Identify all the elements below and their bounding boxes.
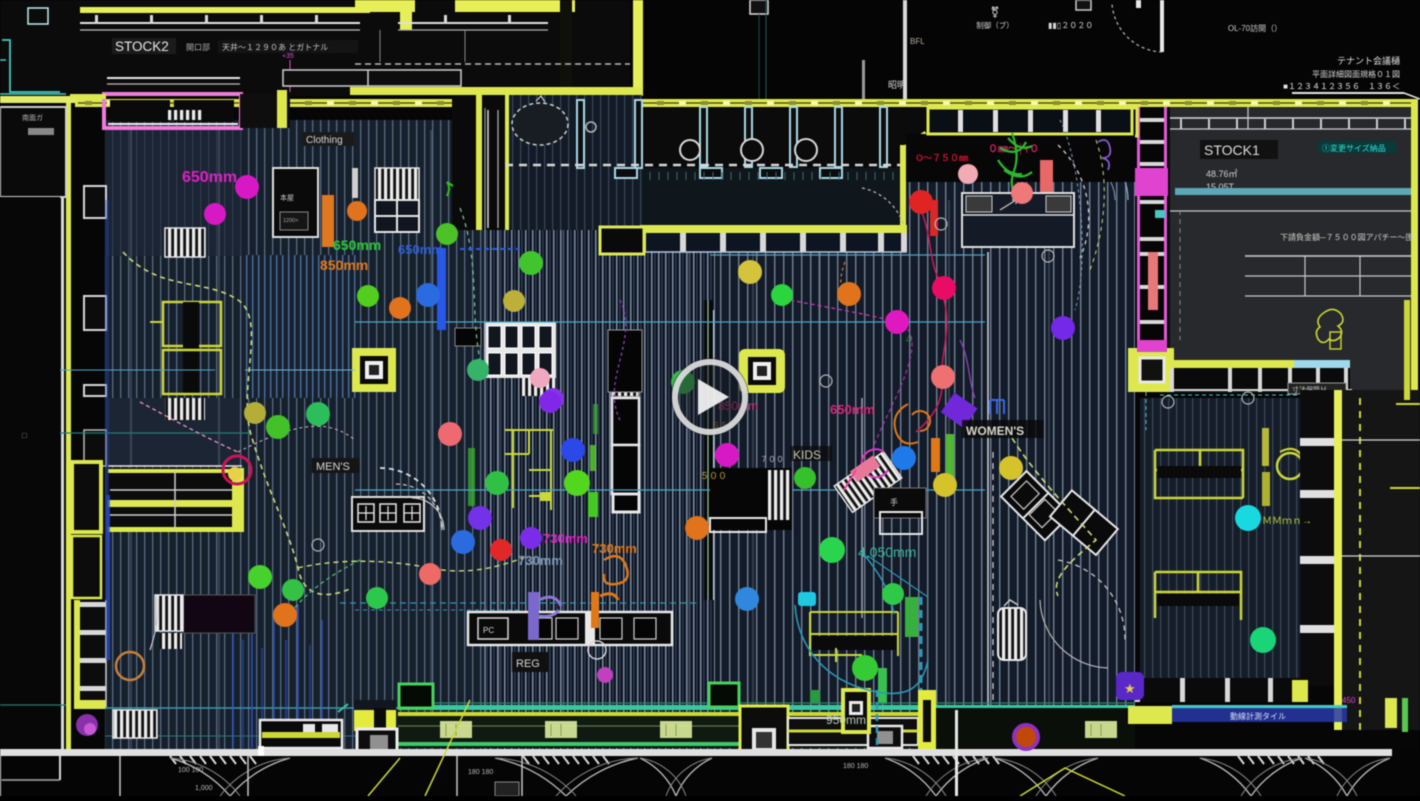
svg-text:450: 450 [1342, 696, 1356, 705]
svg-text:KIDS: KIDS [793, 448, 821, 462]
svg-text:730mm: 730mm [543, 531, 588, 546]
svg-text:REG: REG [516, 658, 540, 670]
svg-text:テナント会議樋: テナント会議樋 [1337, 55, 1400, 66]
svg-text:BFL: BFL [910, 37, 925, 46]
svg-text:MEN'S: MEN'S [316, 461, 350, 473]
svg-text:730mm: 730mm [592, 541, 637, 556]
svg-text:７００: ７００ [760, 455, 784, 464]
svg-text:180 180: 180 180 [843, 763, 868, 770]
svg-text:STOCK2: STOCK2 [115, 39, 169, 54]
svg-text:⚧: ⚧ [990, 6, 999, 19]
svg-text:STOCK1: STOCK1 [1204, 142, 1260, 158]
svg-text:▮▮▯２０２０: ▮▮▯２０２０ [1048, 21, 1093, 30]
svg-text:WOMEN'S: WOMEN'S [966, 424, 1024, 438]
svg-text:100 100: 100 100 [178, 767, 203, 774]
svg-text:ＭＭｍｎ→: ＭＭｍｎ→ [1262, 516, 1312, 527]
svg-text:650mm: 650mm [830, 402, 875, 417]
svg-text:制御（ブ）: 制御（ブ） [976, 20, 1014, 30]
svg-text:PC: PC [483, 626, 494, 635]
svg-text:O〜７５０㎜: O〜７５０㎜ [916, 153, 968, 163]
svg-text:■１２３４１２３５６ １３６＜: ■１２３４１２３５６ １３６＜ [1283, 82, 1400, 91]
svg-text:1200×: 1200× [283, 218, 298, 224]
svg-text:開口部: 開口部 [186, 42, 210, 52]
svg-text:△: △ [906, 333, 913, 342]
svg-text:南面ガ: 南面ガ [22, 113, 43, 122]
svg-text:4,050mm: 4,050mm [858, 544, 916, 560]
svg-text:730mm: 730mm [518, 553, 563, 568]
svg-text:180 180: 180 180 [468, 769, 493, 776]
svg-text:★: ★ [1124, 681, 1136, 696]
svg-text:OL-70訪開（）: OL-70訪開（） [1228, 23, 1282, 33]
svg-text:□: □ [22, 431, 27, 440]
svg-text:1,000: 1,000 [195, 785, 213, 792]
svg-text:手: 手 [890, 497, 898, 507]
svg-text:動線計測タイル: 動線計測タイル [1230, 711, 1286, 721]
svg-text:５００: ５００ [700, 471, 727, 481]
svg-text:+35: +35 [282, 53, 294, 60]
svg-text:Clothing: Clothing [306, 135, 343, 146]
svg-text:本屋: 本屋 [280, 193, 294, 202]
svg-text:850mm: 850mm [320, 257, 368, 273]
svg-text:天井～１２９０あ とガトナル: 天井～１２９０あ とガトナル [222, 42, 328, 52]
svg-text:950mm: 950mm [826, 713, 866, 727]
svg-text:48.76㎡: 48.76㎡ [1206, 169, 1238, 179]
svg-text:①変更サイズ納品: ①変更サイズ納品 [1322, 143, 1386, 153]
svg-text:平面詳細図面規格０１図: 平面詳細図面規格０１図 [1312, 69, 1400, 79]
svg-text:650mm: 650mm [333, 237, 381, 253]
svg-text:650mm: 650mm [182, 169, 237, 186]
svg-text:650mm: 650mm [398, 242, 443, 257]
svg-text:下請負金額─７５００図アパチー～围: 下請負金額─７５００図アパチー～围 [1280, 232, 1414, 242]
